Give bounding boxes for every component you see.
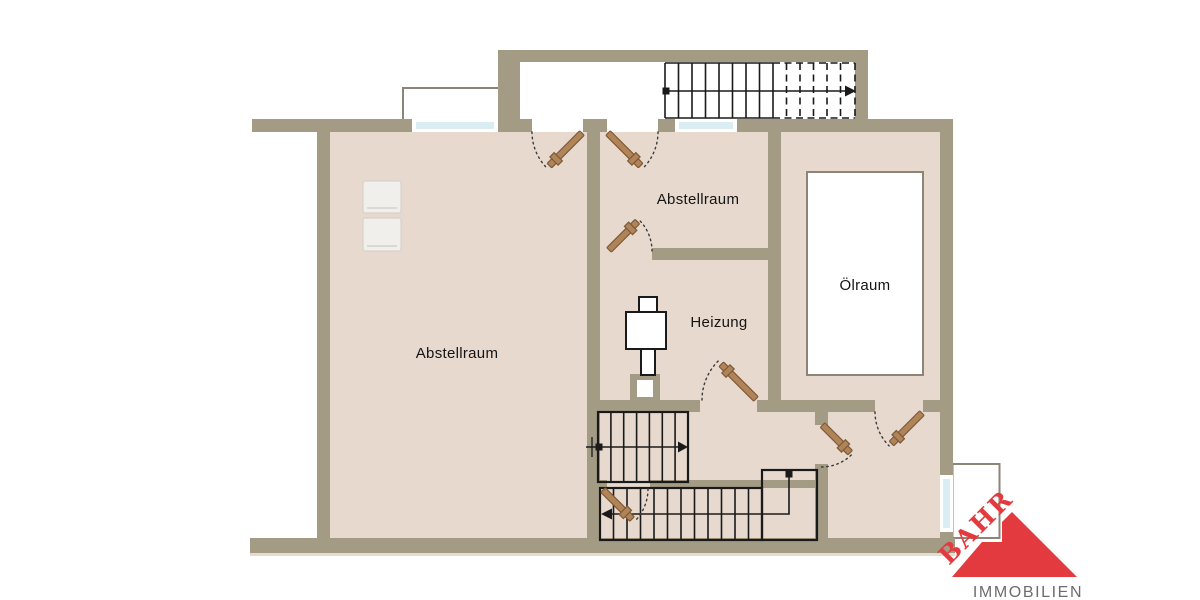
wall-oelraum-bottom bbox=[781, 400, 875, 412]
wall-door-stub bbox=[815, 412, 828, 425]
floor-plan: Abstellraum Abstellraum Heizung Ölraum B… bbox=[0, 0, 1200, 600]
wall-segment bbox=[757, 400, 781, 412]
light-well-top bbox=[403, 88, 500, 122]
wall-segment bbox=[587, 488, 600, 538]
stairwell-wall-top bbox=[498, 50, 868, 62]
wall-shadow bbox=[250, 553, 955, 556]
furnace-body bbox=[626, 312, 666, 349]
wall-segment bbox=[498, 119, 532, 132]
furnace-top bbox=[639, 297, 657, 312]
room-label-heizung: Heizung bbox=[690, 314, 747, 331]
stair-start-dot bbox=[786, 471, 793, 478]
room-label-abstellraum-left: Abstellraum bbox=[416, 345, 499, 362]
staircase-upper-floor bbox=[663, 63, 857, 118]
wall-oelraum-divider bbox=[768, 132, 781, 412]
wall-segment bbox=[737, 119, 940, 132]
wall-segment bbox=[658, 119, 675, 132]
wall-segment bbox=[252, 119, 412, 132]
wall-segment bbox=[583, 119, 607, 132]
stair-start-dot bbox=[663, 88, 670, 95]
floor-plan-page: Abstellraum Abstellraum Heizung Ölraum B… bbox=[0, 0, 1200, 600]
wall-abstellraum-heizung bbox=[652, 248, 781, 260]
wall-left bbox=[317, 119, 330, 538]
window-top-left-glass bbox=[416, 122, 494, 129]
window-right-glass bbox=[943, 479, 950, 528]
oil-tank bbox=[807, 172, 923, 375]
wall-heizung-corridor bbox=[600, 400, 700, 412]
chimney-opening bbox=[637, 380, 653, 397]
logo-tagline: IMMOBILIEN bbox=[973, 584, 1083, 600]
wall-segment bbox=[923, 400, 940, 412]
wall-right-upper bbox=[940, 119, 953, 475]
room-label-oelraum: Ölraum bbox=[840, 276, 891, 294]
stairwell-wall-right bbox=[855, 50, 868, 119]
room-label-abstellraum-top: Abstellraum bbox=[657, 191, 740, 208]
furnace-flue bbox=[641, 349, 655, 375]
window-top-center-glass bbox=[679, 122, 733, 129]
stair-start-dot bbox=[596, 444, 603, 451]
